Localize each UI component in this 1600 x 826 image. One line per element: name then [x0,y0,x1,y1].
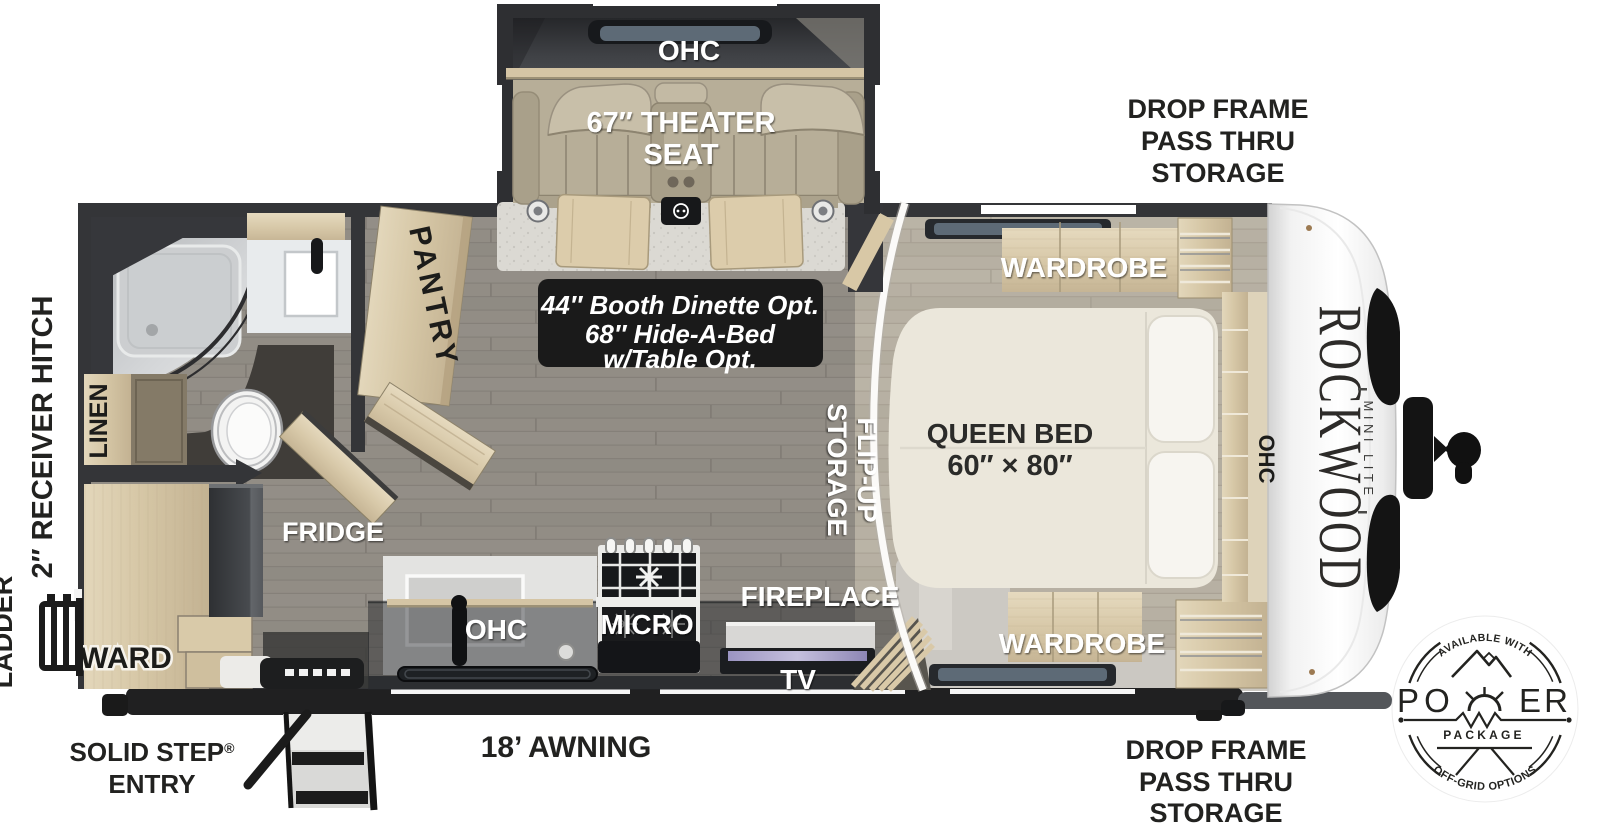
svg-text:WARDROBE: WARDROBE [999,628,1165,659]
svg-text:TV: TV [780,664,816,695]
svg-text:DROP FRAME: DROP FRAME [1125,735,1306,765]
svg-text:STORAGE: STORAGE [1151,158,1284,188]
svg-text:DROP FRAME: DROP FRAME [1127,94,1308,124]
svg-text:LINEN: LINEN [85,384,113,459]
svg-text:STORAGE: STORAGE [822,403,852,536]
svg-text:STORAGE: STORAGE [1149,798,1282,826]
svg-text:2″ RECEIVER HITCH: 2″ RECEIVER HITCH [27,296,59,579]
svg-text:67″ THEATER: 67″ THEATER [587,107,776,139]
svg-text:R: R [1544,682,1568,719]
svg-text:QUEEN BED: QUEEN BED [927,418,1093,449]
svg-text:SEAT: SEAT [643,139,718,171]
svg-text:E: E [1519,682,1541,719]
svg-text:OHC: OHC [658,35,720,66]
svg-text:OHC: OHC [465,614,527,645]
svg-text:MINI LITE: MINI LITE [1361,400,1376,499]
svg-text:O: O [1424,682,1450,719]
svg-text:FIREPLACE: FIREPLACE [741,581,900,612]
svg-text:PACKAGE: PACKAGE [1443,728,1525,742]
svg-text:WARDROBE: WARDROBE [1001,252,1167,283]
svg-text:18’ AWNING: 18’ AWNING [481,731,652,764]
svg-text:60″ × 80″: 60″ × 80″ [947,450,1072,482]
svg-text:LADDER: LADDER [0,576,18,689]
svg-text:PASS THRU: PASS THRU [1141,126,1295,156]
svg-text:FRIDGE: FRIDGE [282,517,384,547]
svg-text:OHC: OHC [1254,435,1279,484]
svg-text:PASS THRU: PASS THRU [1139,767,1293,797]
svg-text:w/Table Opt.: w/Table Opt. [603,344,757,374]
svg-text:44″ Booth Dinette Opt.: 44″ Booth Dinette Opt. [540,290,819,320]
svg-text:MICRO: MICRO [600,609,693,640]
svg-text:ENTRY: ENTRY [108,769,195,799]
svg-text:P: P [1397,682,1419,719]
svg-text:SOLID STEP®: SOLID STEP® [70,737,236,767]
svg-text:FLIP-UP: FLIP-UP [852,418,882,523]
svg-text:WARD: WARD [80,642,172,675]
